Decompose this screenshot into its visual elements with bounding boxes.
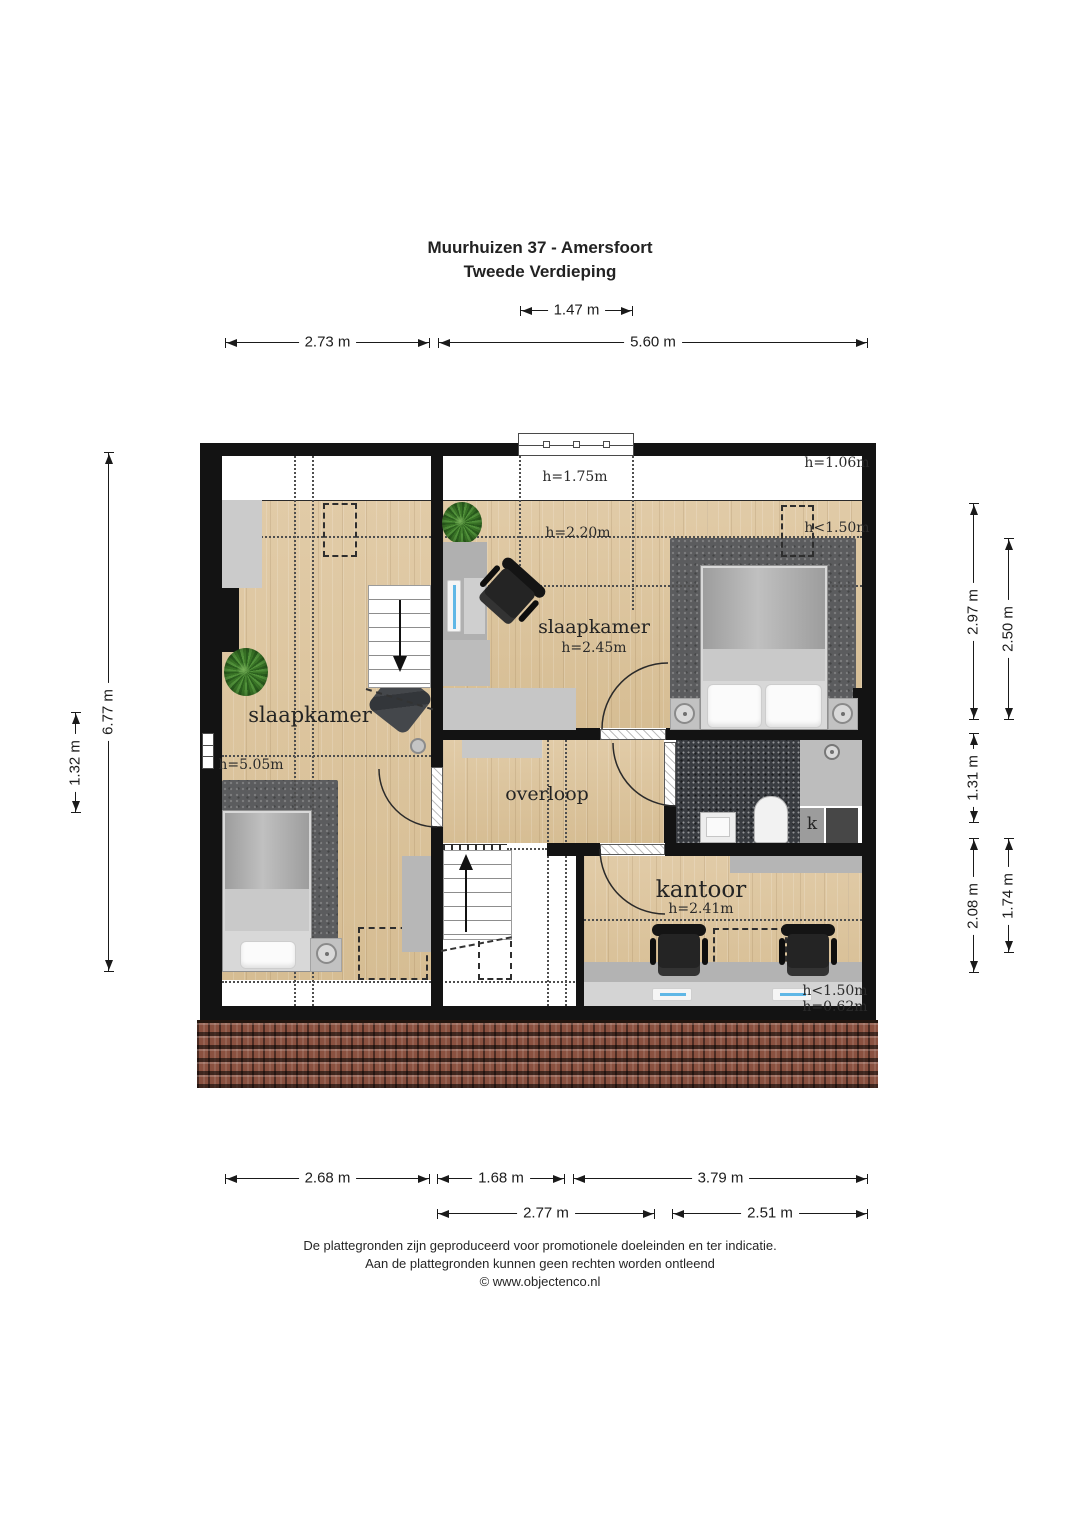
note-bedroom-left-height: h=5.05m bbox=[213, 757, 289, 773]
label-bedroom-left: slaapkamer bbox=[230, 703, 390, 727]
dim-right-3: 1.31 m bbox=[973, 733, 974, 823]
dim-left-total: 6.77 m bbox=[108, 452, 109, 972]
dim-bottom-2: 1.68 m bbox=[437, 1178, 565, 1179]
roof-tiles bbox=[197, 1020, 878, 1088]
dim-top-left: 2.73 m bbox=[225, 342, 430, 343]
note-bedroom-right-height: h=2.45m bbox=[514, 640, 674, 656]
dim-right-5-label: 1.74 m bbox=[1000, 867, 1017, 925]
dim-right-4-label: 2.08 m bbox=[965, 877, 982, 935]
dim-left-inner: 1.32 m bbox=[75, 712, 76, 813]
dim-bottom-2-label: 1.68 m bbox=[472, 1170, 530, 1187]
dim-top-left-label: 2.73 m bbox=[299, 334, 357, 351]
dim-bottom-1: 2.68 m bbox=[225, 1178, 430, 1179]
dim-bottom-5-label: 2.51 m bbox=[741, 1205, 799, 1222]
footer-disclaimer-2: Aan de plattegronden kunnen geen rechten… bbox=[0, 1256, 1080, 1271]
note-office-knee-height: h=0.62m bbox=[800, 999, 870, 1015]
dim-bottom-3: 3.79 m bbox=[573, 1178, 868, 1179]
note-ridge-height: h=2.20m bbox=[543, 525, 613, 541]
footer-disclaimer-1: De plattegronden zijn geproduceerd voor … bbox=[0, 1238, 1080, 1253]
dim-right-3-label: 1.31 m bbox=[965, 749, 982, 807]
door-arc-bedroom-left bbox=[379, 769, 437, 827]
dim-bottom-3-label: 3.79 m bbox=[692, 1170, 750, 1187]
dim-right-5: 1.74 m bbox=[1008, 838, 1009, 953]
dim-top-window: 1.47 m bbox=[520, 310, 633, 311]
dim-bottom-5: 2.51 m bbox=[672, 1213, 868, 1214]
door-arc-bedroom-right bbox=[602, 663, 668, 729]
label-landing: overloop bbox=[487, 783, 607, 805]
floorplan-page: Muurhuizen 37 - Amersfoort Tweede Verdie… bbox=[0, 0, 1080, 1527]
label-office: kantoor bbox=[631, 877, 771, 903]
dim-right-1-label: 2.97 m bbox=[965, 583, 982, 641]
footer-copyright: © www.objectenco.nl bbox=[0, 1274, 1080, 1289]
note-dormer-height: h<1.50m bbox=[804, 520, 870, 536]
dim-right-2-label: 2.50 m bbox=[1000, 600, 1017, 658]
dim-top-right-label: 5.60 m bbox=[624, 334, 682, 351]
dim-left-inner-label: 1.32 m bbox=[67, 734, 84, 792]
dim-right-4: 2.08 m bbox=[973, 838, 974, 973]
note-office-height: h=2.41m bbox=[631, 901, 771, 917]
dim-bottom-1-label: 2.68 m bbox=[299, 1170, 357, 1187]
dim-right-1: 2.97 m bbox=[973, 503, 974, 720]
note-topright-height: h=1.06m bbox=[804, 455, 870, 471]
dim-top-window-label: 1.47 m bbox=[548, 302, 606, 319]
dim-left-total-label: 6.77 m bbox=[100, 683, 117, 741]
dim-top-right: 5.60 m bbox=[438, 342, 868, 343]
door-arc-bathroom bbox=[613, 743, 676, 806]
door-swing-overlay bbox=[0, 0, 1080, 1527]
dim-bottom-4: 2.77 m bbox=[437, 1213, 655, 1214]
dim-right-2: 2.50 m bbox=[1008, 538, 1009, 720]
dim-bottom-4-label: 2.77 m bbox=[517, 1205, 575, 1222]
label-bedroom-right: slaapkamer bbox=[514, 616, 674, 638]
window-dormer bbox=[518, 433, 634, 456]
note-office-edge-height: h<1.50m bbox=[800, 983, 870, 999]
note-window-height: h=1.75m bbox=[540, 469, 610, 485]
